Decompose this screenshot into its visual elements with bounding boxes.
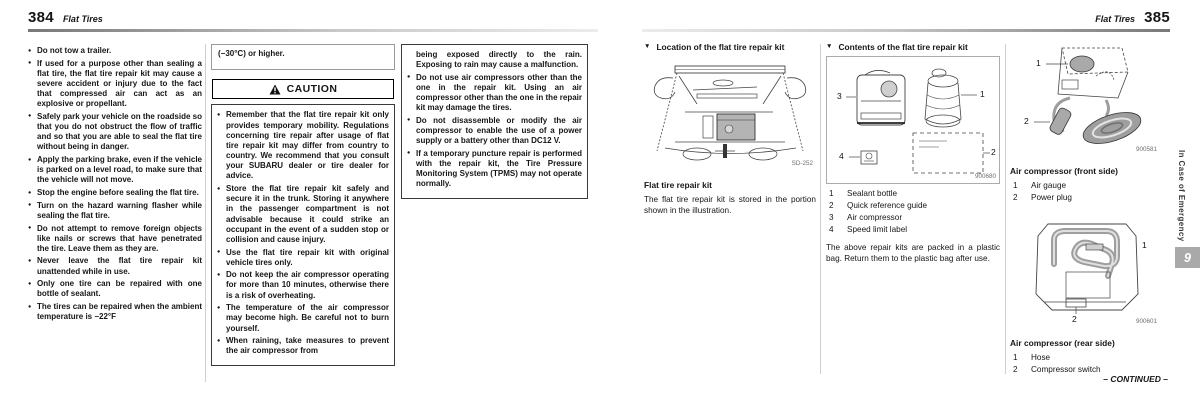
part-list-row: 1 Air gauge [1010, 181, 1162, 192]
part-number: 1 [826, 189, 847, 200]
figure-code: SD-252 [792, 160, 813, 168]
caution-column: (−30°C) or higher. CAUTION Remember that… [211, 44, 395, 366]
manual-spread: 384 Flat Tires Do not tow a trailer. If … [0, 0, 1200, 402]
warning-bullet-text: Safely park your vehicle on the roadside… [37, 112, 202, 153]
part-list-row: 1 Hose [1010, 353, 1162, 364]
callout-1: 1 [1036, 58, 1041, 69]
bullet-icon [28, 112, 37, 153]
warning-bullet-list: Do not tow a trailer. If used for a purp… [28, 46, 202, 322]
compressor-front-caption: Air compressor (front side) [1010, 166, 1162, 177]
warning-bullet: Turn on the hazard warning flasher while… [28, 201, 202, 221]
callout-2: 2 [991, 147, 996, 158]
caution-bullet-text: When raining, take measures to prevent t… [226, 336, 389, 356]
part-label: Speed limit label [847, 225, 1000, 236]
warning-bullet: Never leave the flat tire repair kit una… [28, 256, 202, 276]
left-page-title: Flat Tires [63, 14, 103, 24]
caution-header: CAUTION [212, 79, 394, 99]
caution-bullet: Remember that the flat tire repair kit o… [217, 110, 389, 181]
figure-compressor-front: 1 2 900581 [1010, 42, 1160, 156]
warning-bullet-text: If used for a purpose other than sealing… [37, 59, 202, 110]
caution-title: CAUTION [287, 83, 338, 96]
caution-bullet-text: If a temporary puncture repair is perfor… [416, 149, 582, 190]
temperature-continuation-box: (−30°C) or higher. [211, 44, 395, 70]
warning-bullet: Safely park your vehicle on the roadside… [28, 112, 202, 153]
part-number: 2 [826, 201, 847, 212]
right-header-rule [642, 29, 1170, 32]
column-divider [205, 44, 206, 382]
warning-bullet-text: Do not attempt to remove foreign objects… [37, 224, 202, 254]
compressor-rear-caption: Air compressor (rear side) [1010, 338, 1162, 349]
caution-body-col2: Remember that the flat tire repair kit o… [211, 104, 395, 366]
left-header-rule [28, 29, 598, 32]
warning-bullet: The tires can be repaired when the ambie… [28, 302, 202, 322]
bullet-icon [28, 155, 37, 185]
temperature-continuation-text: (−30°C) or higher. [218, 49, 285, 58]
callout-2: 2 [1072, 314, 1077, 325]
right-page-number: 385 [1144, 9, 1170, 26]
caution-bullet: Use the flat tire repair kit with origin… [217, 248, 389, 268]
part-list-row: 3 Air compressor [826, 213, 1000, 224]
caution-bullet: Do not disassemble or modify the air com… [407, 116, 582, 146]
caution-bullet-text: Store the flat tire repair kit safely an… [226, 184, 389, 245]
compressor-rear-part-list: 1 Hose 2 Compressor switch [1010, 353, 1162, 376]
part-list-row: 2 Power plug [1010, 193, 1162, 204]
caution-bullet: When raining, take measures to prevent t… [217, 336, 389, 356]
compressor-column: 1 2 900581 Air compressor (front side) 1… [1010, 42, 1162, 377]
part-label: Hose [1031, 353, 1162, 364]
section-title-location: Location of the flat tire repair kit [656, 42, 784, 53]
warning-bullet-text: Only one tire can be repaired with one b… [37, 279, 202, 299]
part-number: 1 [1010, 181, 1031, 192]
warning-bullet-text: Never leave the flat tire repair kit una… [37, 256, 202, 276]
left-page-number: 384 [28, 9, 54, 26]
caution-bullet: Do not use air compressors other than th… [407, 73, 582, 114]
compressor-rear-illustration [1010, 216, 1160, 328]
bullet-icon [407, 73, 416, 114]
kit-contents-illustration [827, 57, 999, 183]
part-list-row: 1 Sealant bottle [826, 189, 1000, 200]
caution-bullet-text: Do not disassemble or modify the air com… [416, 116, 582, 146]
warning-bullet: Only one tire can be repaired with one b… [28, 279, 202, 299]
warning-bullet: Stop the engine before sealing the flat … [28, 188, 202, 198]
left-page-header: 384 Flat Tires [28, 9, 103, 26]
warning-bullet-text: The tires can be repaired when the ambie… [37, 302, 202, 322]
caution-continuation-text: being exposed directly to the rain. Expo… [407, 50, 582, 70]
caution-bullet-text: Use the flat tire repair kit with origin… [226, 248, 389, 268]
caution-column-continued: being exposed directly to the rain. Expo… [401, 44, 588, 199]
warning-bullet-text: Stop the engine before sealing the flat … [37, 188, 202, 198]
section-title-contents: Contents of the flat tire repair kit [838, 42, 967, 53]
section-marker-icon: ▼ [644, 43, 650, 54]
part-label: Power plug [1031, 193, 1162, 204]
chapter-number-tab: 9 [1175, 247, 1200, 268]
right-page-header: Flat Tires 385 [890, 9, 1170, 26]
figure-code: 900601 [1136, 318, 1157, 326]
caution-bullet: The temperature of the air compressor ma… [217, 303, 389, 333]
callout-4: 4 [839, 151, 844, 162]
continued-label: – CONTINUED – [1000, 374, 1168, 384]
bullet-icon [28, 302, 37, 322]
part-number: 2 [1010, 193, 1031, 204]
column-divider [820, 44, 821, 374]
warning-triangle-icon [269, 84, 281, 95]
callout-1: 1 [1142, 240, 1147, 251]
figure-compressor-rear: 1 2 900601 [1010, 216, 1160, 328]
right-page-title: Flat Tires [1095, 14, 1135, 24]
caution-bullet-text: Do not use air compressors other than th… [416, 73, 582, 114]
caution-bullet-text: The temperature of the air compressor ma… [226, 303, 389, 333]
part-number: 1 [1010, 353, 1031, 364]
warning-bullet: Apply the parking brake, even if the veh… [28, 155, 202, 185]
warning-bullet: Do not tow a trailer. [28, 46, 202, 56]
chapter-title-vertical: In Case of Emergency [1177, 150, 1186, 242]
bullet-icon [217, 110, 226, 181]
warning-bullet-text: Do not tow a trailer. [37, 46, 202, 56]
trunk-illustration [644, 56, 816, 170]
callout-2: 2 [1024, 116, 1029, 127]
warning-bullet: Do not attempt to remove foreign objects… [28, 224, 202, 254]
caution-bullet-list-col3: Do not use air compressors other than th… [407, 73, 582, 190]
bullet-icon [28, 46, 37, 56]
bullet-icon [217, 270, 226, 300]
part-label: Air compressor [847, 213, 1000, 224]
contents-section: ▼ Contents of the flat tire repair kit [826, 42, 1000, 264]
section-header-location: ▼ Location of the flat tire repair kit [644, 42, 816, 53]
bullet-icon [217, 248, 226, 268]
caution-bullet: Store the flat tire repair kit safely an… [217, 184, 389, 245]
compressor-front-part-list: 1 Air gauge 2 Power plug [1010, 181, 1162, 204]
contents-body-text: The above repair kits are packed in a pl… [826, 243, 1000, 264]
figure-kit-contents: 3 1 2 4 900680 [826, 56, 1000, 184]
figure-code: 900581 [1136, 146, 1157, 154]
part-list-row: 4 Speed limit label [826, 225, 1000, 236]
callout-3: 3 [837, 91, 842, 102]
warnings-column-1: Do not tow a trailer. If used for a purp… [28, 46, 202, 325]
section-marker-icon: ▼ [826, 43, 832, 54]
bullet-icon [217, 336, 226, 356]
bullet-icon [28, 256, 37, 276]
callout-1: 1 [980, 89, 985, 100]
location-section: ▼ Location of the flat tire repair kit [644, 42, 816, 216]
warning-bullet-text: Turn on the hazard warning flasher while… [37, 201, 202, 221]
compressor-front-illustration [1010, 42, 1160, 156]
bullet-icon [28, 201, 37, 221]
bullet-icon [28, 279, 37, 299]
caution-body-col3: being exposed directly to the rain. Expo… [401, 44, 588, 199]
section-header-contents: ▼ Contents of the flat tire repair kit [826, 42, 1000, 53]
bullet-icon [407, 149, 416, 190]
location-body-text: The flat tire repair kit is stored in th… [644, 195, 816, 216]
bullet-icon [28, 188, 37, 198]
part-label: Sealant bottle [847, 189, 1000, 200]
bullet-icon [217, 303, 226, 333]
caution-bullet-list-col2: Remember that the flat tire repair kit o… [217, 110, 389, 356]
part-number: 3 [826, 213, 847, 224]
column-divider [1005, 44, 1006, 374]
caution-bullet-text: Remember that the flat tire repair kit o… [226, 110, 389, 181]
bullet-icon [407, 116, 416, 146]
bullet-icon [28, 224, 37, 254]
warning-bullet: If used for a purpose other than sealing… [28, 59, 202, 110]
caution-bullet-text: Do not keep the air compressor operating… [226, 270, 389, 300]
location-caption: Flat tire repair kit [644, 180, 816, 191]
part-label: Quick reference guide [847, 201, 1000, 212]
bullet-icon [28, 59, 37, 110]
caution-bullet: Do not keep the air compressor operating… [217, 270, 389, 300]
part-list-row: 2 Quick reference guide [826, 201, 1000, 212]
part-number: 4 [826, 225, 847, 236]
figure-trunk-location: SD-252 [644, 56, 816, 170]
contents-part-list: 1 Sealant bottle 2 Quick reference guide… [826, 189, 1000, 236]
warning-bullet-text: Apply the parking brake, even if the veh… [37, 155, 202, 185]
figure-code: 900680 [975, 173, 996, 181]
part-label: Air gauge [1031, 181, 1162, 192]
caution-bullet: If a temporary puncture repair is perfor… [407, 149, 582, 190]
bullet-icon [217, 184, 226, 245]
